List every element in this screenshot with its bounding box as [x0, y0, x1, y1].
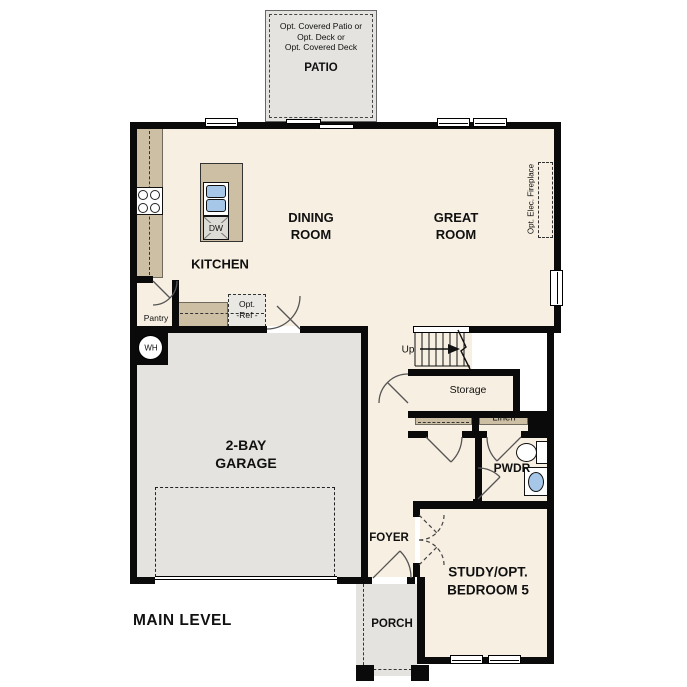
patio-slider-panel-left: [286, 119, 321, 124]
opt-fireplace-box: [538, 162, 553, 238]
opt-fireplace-label: Opt. Elec. Fireplace: [527, 164, 536, 234]
window-great-2: [473, 118, 507, 127]
window-study-1: [450, 655, 483, 664]
garage-apron-dashed: [155, 487, 335, 577]
stair-landing-strip: [413, 326, 470, 333]
storage-label: Storage: [450, 384, 487, 396]
wall-study-left-upper: [413, 501, 420, 517]
wall-garage-top-left: [130, 326, 267, 333]
window-great-1: [437, 118, 470, 127]
main-level-title: MAIN LEVEL: [133, 612, 232, 630]
sink-bowl-top: [206, 185, 226, 198]
foyer-label: FOYER: [369, 532, 409, 544]
stairs-up-label: Up: [402, 345, 415, 356]
sink-bowl-bottom: [206, 199, 226, 212]
window-dining: [205, 118, 238, 127]
wall-right-lower: [547, 326, 554, 664]
wall-storage-top: [408, 369, 520, 376]
powder-sink-basin: [528, 472, 544, 492]
floor-plan: Opt. Covered Patio or Opt. Deck or Opt. …: [0, 0, 687, 687]
wall-pantry-top: [137, 276, 153, 283]
wall-garage-right: [361, 326, 368, 584]
closet-rod-dashed: [418, 422, 469, 423]
wall-closet-stub-left: [408, 431, 428, 438]
wall-study-left-below: [417, 577, 425, 664]
dishwasher-label: DW: [208, 223, 224, 233]
mudroom-bench: [178, 302, 228, 327]
porch-post-right: [411, 665, 429, 681]
patio-options-note: Opt. Covered Patio or Opt. Deck or Opt. …: [266, 21, 376, 53]
stair-void-lower: [520, 369, 547, 411]
wall-foyer-bottom: [356, 577, 372, 584]
study-label: STUDY/OPT. BEDROOM 5: [447, 563, 529, 598]
powder-label: PWDR: [494, 461, 531, 475]
wall-chase-void: [528, 411, 547, 438]
cooktop: [136, 187, 163, 215]
toilet-bowl: [516, 443, 537, 462]
garage-door: [155, 576, 337, 584]
linen-label: Linen: [492, 413, 515, 424]
window-study-2: [488, 655, 521, 664]
pantry-label: Pantry: [144, 313, 169, 323]
garage-label: 2-BAY GARAGE: [215, 436, 276, 472]
water-heater-label: WH: [144, 344, 157, 353]
wall-foyer-post: [407, 577, 415, 584]
wall-study-top: [413, 501, 554, 509]
stair-void-upper: [472, 333, 547, 369]
wall-powder-left: [475, 438, 482, 499]
window-great-right: [550, 270, 563, 306]
wall-study-bottom: [417, 657, 554, 664]
wall-closet-stub-right: [521, 431, 528, 438]
kitchen-label: KITCHEN: [191, 257, 249, 272]
wall-study-left-lower: [413, 563, 420, 577]
wall-closet-stub-mid: [462, 431, 487, 438]
dining-room-label: DINING ROOM: [288, 210, 334, 244]
wall-pantry-right: [172, 280, 179, 326]
porch-label: PORCH: [371, 618, 413, 630]
patio-label: PATIO: [304, 62, 337, 74]
porch-post-left: [356, 665, 374, 681]
opt-ref-label: Opt. -Ref -: [236, 299, 257, 321]
patio-slider-panel-right: [319, 124, 354, 129]
wall-garage-top-right: [300, 326, 368, 333]
great-room-label: GREAT ROOM: [434, 210, 479, 244]
